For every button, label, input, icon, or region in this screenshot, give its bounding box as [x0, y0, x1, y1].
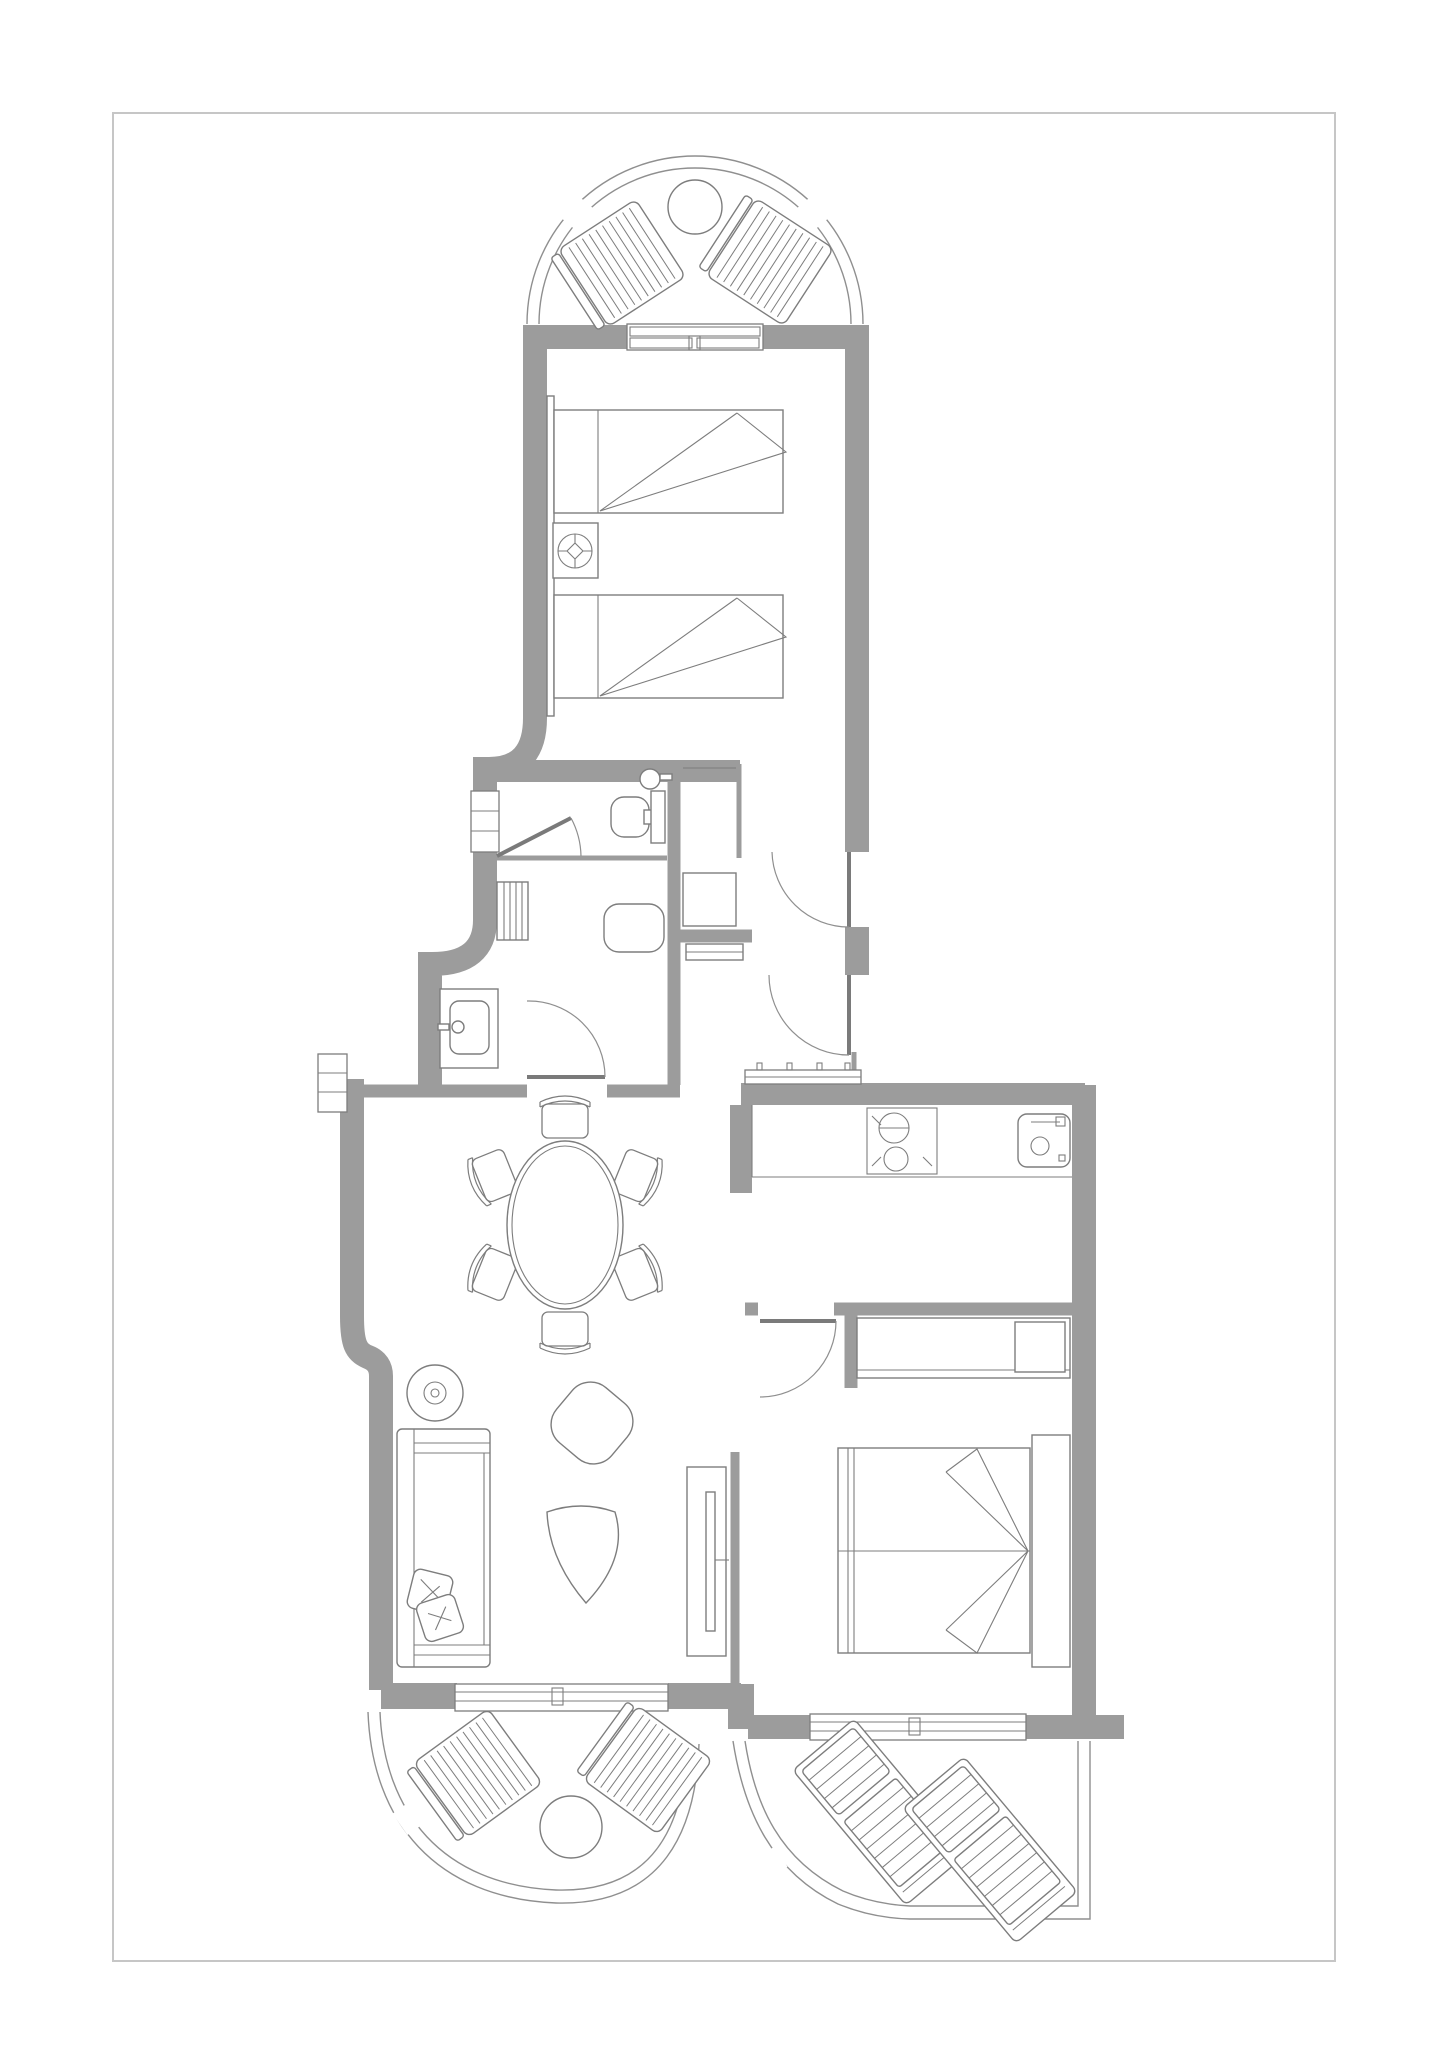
sliding-door-bed1-terrace [627, 324, 763, 350]
twin-bedroom [547, 396, 786, 716]
window-west-small [318, 1054, 347, 1112]
toilet [611, 791, 665, 843]
doormat [686, 944, 743, 960]
dining-area [462, 1096, 667, 1354]
armchair [541, 1372, 642, 1473]
sofa [397, 1429, 490, 1667]
bidet [604, 904, 664, 952]
closet [683, 873, 736, 926]
nightstand-with-lamp [553, 523, 598, 578]
round-table [540, 1796, 602, 1858]
sun-lounger [405, 1709, 542, 1844]
wardrobe [857, 1318, 1070, 1378]
terrace-top [527, 156, 863, 333]
tv-cabinet [687, 1467, 729, 1656]
floor-plan-drawing [0, 0, 1448, 2048]
window-kitchen-service [745, 1063, 861, 1084]
kitchen [752, 1105, 1072, 1177]
entrance-door [772, 852, 849, 927]
terrace-bottom-left [368, 1699, 712, 1903]
living-area [397, 1365, 729, 1667]
coffee-table [547, 1506, 618, 1603]
hall-passage-door [769, 975, 849, 1055]
wall-bed1-left [485, 325, 535, 791]
wc-inner-door [497, 818, 581, 856]
railing-break [756, 1846, 787, 1878]
bathroom-door [527, 1001, 605, 1077]
bedroom2-door [760, 1321, 836, 1397]
oval-dining-table [507, 1141, 623, 1309]
dining-chair [540, 1096, 590, 1138]
safe [1015, 1322, 1065, 1372]
railing-break-right [796, 195, 831, 231]
sliding-door-living-terrace [455, 1684, 668, 1711]
single-bed-bottom [554, 595, 786, 698]
floor-lamp [407, 1365, 463, 1421]
double-bed [838, 1435, 1070, 1667]
vanity-washbasin [438, 989, 498, 1068]
double-bedroom [838, 1318, 1070, 1667]
wall-west-lower [352, 1079, 381, 1690]
round-table [668, 180, 722, 234]
radiator [497, 882, 528, 940]
kitchen-sink [1018, 1114, 1070, 1167]
window-bathroom [471, 791, 499, 852]
dining-chair [540, 1312, 590, 1354]
two-burner-hob [867, 1108, 937, 1174]
floor-plan-page [0, 0, 1448, 2048]
railing-break-left [560, 195, 595, 231]
terrace-bottom-right [733, 1719, 1090, 1943]
single-bed-top [554, 410, 786, 513]
headboard-panel [1032, 1435, 1070, 1667]
